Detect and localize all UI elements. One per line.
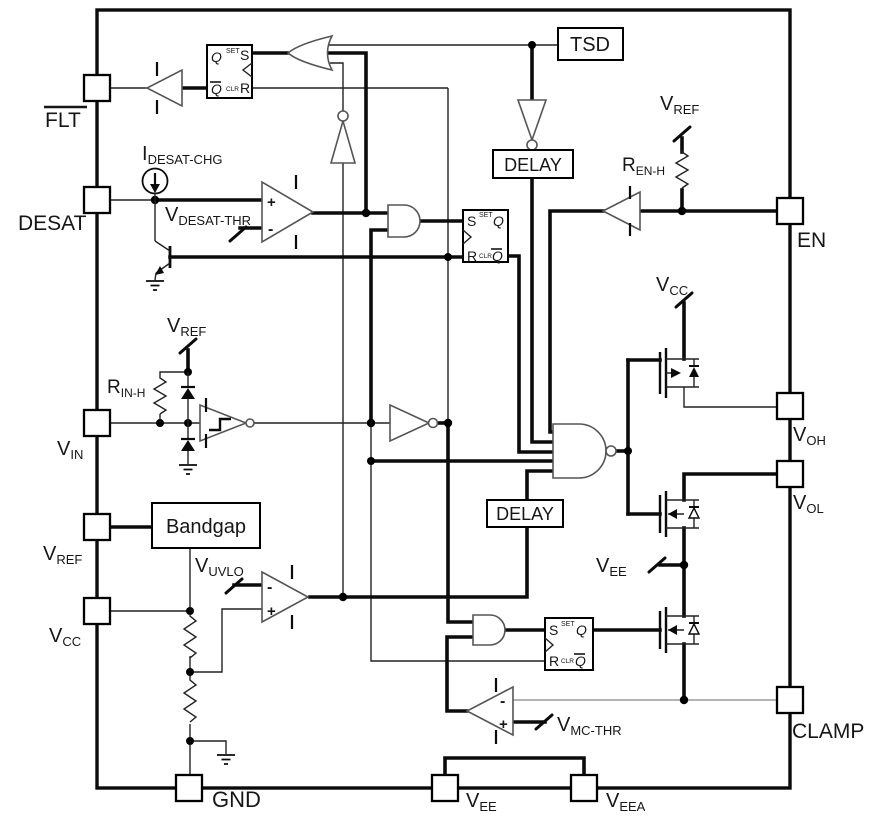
uvlo-divider-resistor-bottom — [184, 678, 196, 722]
miller-clamp-comparator: - + — [467, 678, 513, 744]
output-nand-gate — [553, 424, 616, 478]
vin-clamp-diode-top — [181, 372, 195, 423]
desat-latch-r: R — [467, 248, 477, 264]
clamp-latch-r: R — [549, 653, 559, 669]
high-side-pmos — [660, 348, 699, 398]
tsd-label: TSD — [570, 34, 610, 56]
input-inverter — [390, 405, 438, 441]
nand-output-bubble — [606, 446, 616, 456]
desat-latch-s: S — [467, 213, 476, 229]
veea-pin-label: VEEA — [606, 790, 646, 814]
pin-flt — [84, 75, 110, 101]
gnd-label: GND — [212, 787, 261, 812]
vee-rail-label: VEE — [596, 555, 627, 579]
uvlo-comp-plus: + — [267, 603, 276, 620]
desat-latch-qbar: Q — [492, 248, 503, 264]
desat-and-gate — [388, 205, 420, 237]
vcc-pin-label: VCC — [49, 625, 81, 649]
idesat-chg-label: IDESAT-CHG — [142, 143, 222, 167]
miller-clamp-nmos — [660, 607, 699, 653]
desat-latch-q: Q — [493, 213, 504, 229]
ren-h-resistor — [676, 150, 688, 188]
tsd-inverter — [518, 100, 546, 150]
desat-latch-clr: CLR — [479, 253, 492, 260]
bandgap-label: Bandgap — [166, 516, 246, 538]
body-diode-icon — [689, 624, 699, 634]
flt-output-buffer — [147, 62, 182, 114]
desat-comparator: + - — [262, 175, 313, 249]
gate-driver-functional-block-diagram: + - - + - + Q SET S Q CLR R S SET Q R CL… — [0, 0, 874, 831]
labels: FLT DESAT VIN VREF VCC GND VEE VEEA EN V… — [18, 93, 864, 814]
uvlo-divider-resistor-top — [184, 614, 196, 658]
pin-vee — [432, 775, 458, 801]
desat-label: DESAT — [18, 212, 87, 235]
tsd-block: TSD — [558, 28, 623, 60]
rin-h-label: RIN-H — [107, 377, 145, 400]
clamp-label: CLAMP — [792, 720, 864, 743]
vref-ren-label: VREF — [660, 93, 699, 117]
divider-ground — [217, 755, 235, 764]
mosfet-arrow-icon — [671, 368, 681, 378]
clamp-latch-s: S — [549, 622, 558, 638]
vuvlo-label: VUVLO — [195, 555, 244, 579]
body-diode-icon — [689, 508, 699, 518]
input-schmitt-trigger — [200, 398, 254, 448]
delay-block-bottom: DELAY — [487, 500, 563, 527]
flt-label: FLT — [45, 109, 81, 132]
pin-gnd — [176, 775, 202, 801]
mosfet-arrow-icon — [668, 625, 677, 635]
pin-veea — [571, 775, 597, 801]
pin-voh — [777, 393, 803, 419]
vdesat-thr-slash-icon — [230, 227, 246, 241]
pin-vref — [84, 514, 110, 540]
rin-h-resistor — [154, 376, 166, 414]
ground-icon — [217, 755, 235, 764]
fault-latch-clr: CLR — [226, 86, 239, 93]
vref-pin-label: VREF — [43, 543, 82, 567]
en-buffer — [603, 186, 640, 236]
vee-pin-label: VEE — [466, 790, 497, 814]
junction-dots — [151, 41, 688, 745]
bandgap-block: Bandgap — [152, 503, 260, 548]
clamp-latch-clr: CLR — [561, 658, 574, 665]
desat-latch: S SET Q R CLR Q — [463, 210, 508, 264]
vref-rin-label: VREF — [167, 315, 206, 339]
pin-en — [777, 198, 803, 224]
desat-charge-current-source — [143, 169, 168, 201]
clamp-latch-qbar: Q — [575, 653, 586, 669]
ground-icon — [146, 281, 164, 290]
pin-vin — [84, 410, 110, 436]
uvlo-comp-minus: - — [267, 579, 272, 596]
block-diagram: + - - + - + Q SET S Q CLR R S SET Q R CL… — [0, 0, 874, 831]
clamp-latch-set: SET — [561, 621, 575, 628]
en-label: EN — [797, 229, 826, 252]
ground-icon — [179, 465, 197, 474]
delay-block-top: DELAY — [493, 150, 573, 178]
pin-vol — [777, 461, 803, 487]
vin-clamp-diode-bottom — [179, 423, 197, 474]
vcc-rail-label: VCC — [656, 274, 688, 298]
fault-or-gate — [288, 36, 332, 70]
desat-comp-minus: - — [268, 221, 273, 238]
delay-top-label: DELAY — [504, 155, 562, 175]
uvlo-fault-inverter — [331, 111, 355, 163]
pin-vcc — [84, 598, 110, 624]
vdesat-thr-label: VDESAT-THR — [165, 204, 251, 228]
clamp-and-gate — [473, 615, 505, 645]
mc-comp-plus: + — [499, 716, 508, 733]
desat-comp-plus: + — [267, 194, 276, 211]
fault-latch: Q SET S Q CLR R — [207, 45, 252, 98]
vmc-thr-label: VMC-THR — [557, 714, 622, 738]
fault-latch-set: SET — [226, 48, 240, 55]
mosfet-arrow-icon — [668, 509, 677, 519]
pin-clamp — [777, 687, 803, 713]
vin-label: VIN — [57, 438, 83, 462]
vol-label: VOL — [793, 492, 824, 516]
low-side-nmos — [660, 491, 699, 537]
clamp-latch: S SET Q R CLR Q — [545, 618, 593, 670]
fault-latch-s: S — [240, 47, 249, 63]
clamp-latch-q: Q — [576, 622, 587, 638]
body-diode-icon — [689, 367, 699, 377]
desat-latch-set: SET — [479, 212, 493, 219]
fault-latch-r: R — [240, 80, 250, 96]
voh-label: VOH — [793, 424, 826, 448]
fault-latch-q: Q — [211, 49, 222, 65]
ren-h-label: REN-H — [622, 155, 665, 178]
uvlo-comparator: - + — [262, 565, 308, 629]
delay-bottom-label: DELAY — [496, 504, 554, 524]
fault-latch-qbar: Q — [211, 81, 222, 97]
pin-desat — [84, 187, 110, 213]
mc-comp-minus: - — [500, 693, 505, 710]
